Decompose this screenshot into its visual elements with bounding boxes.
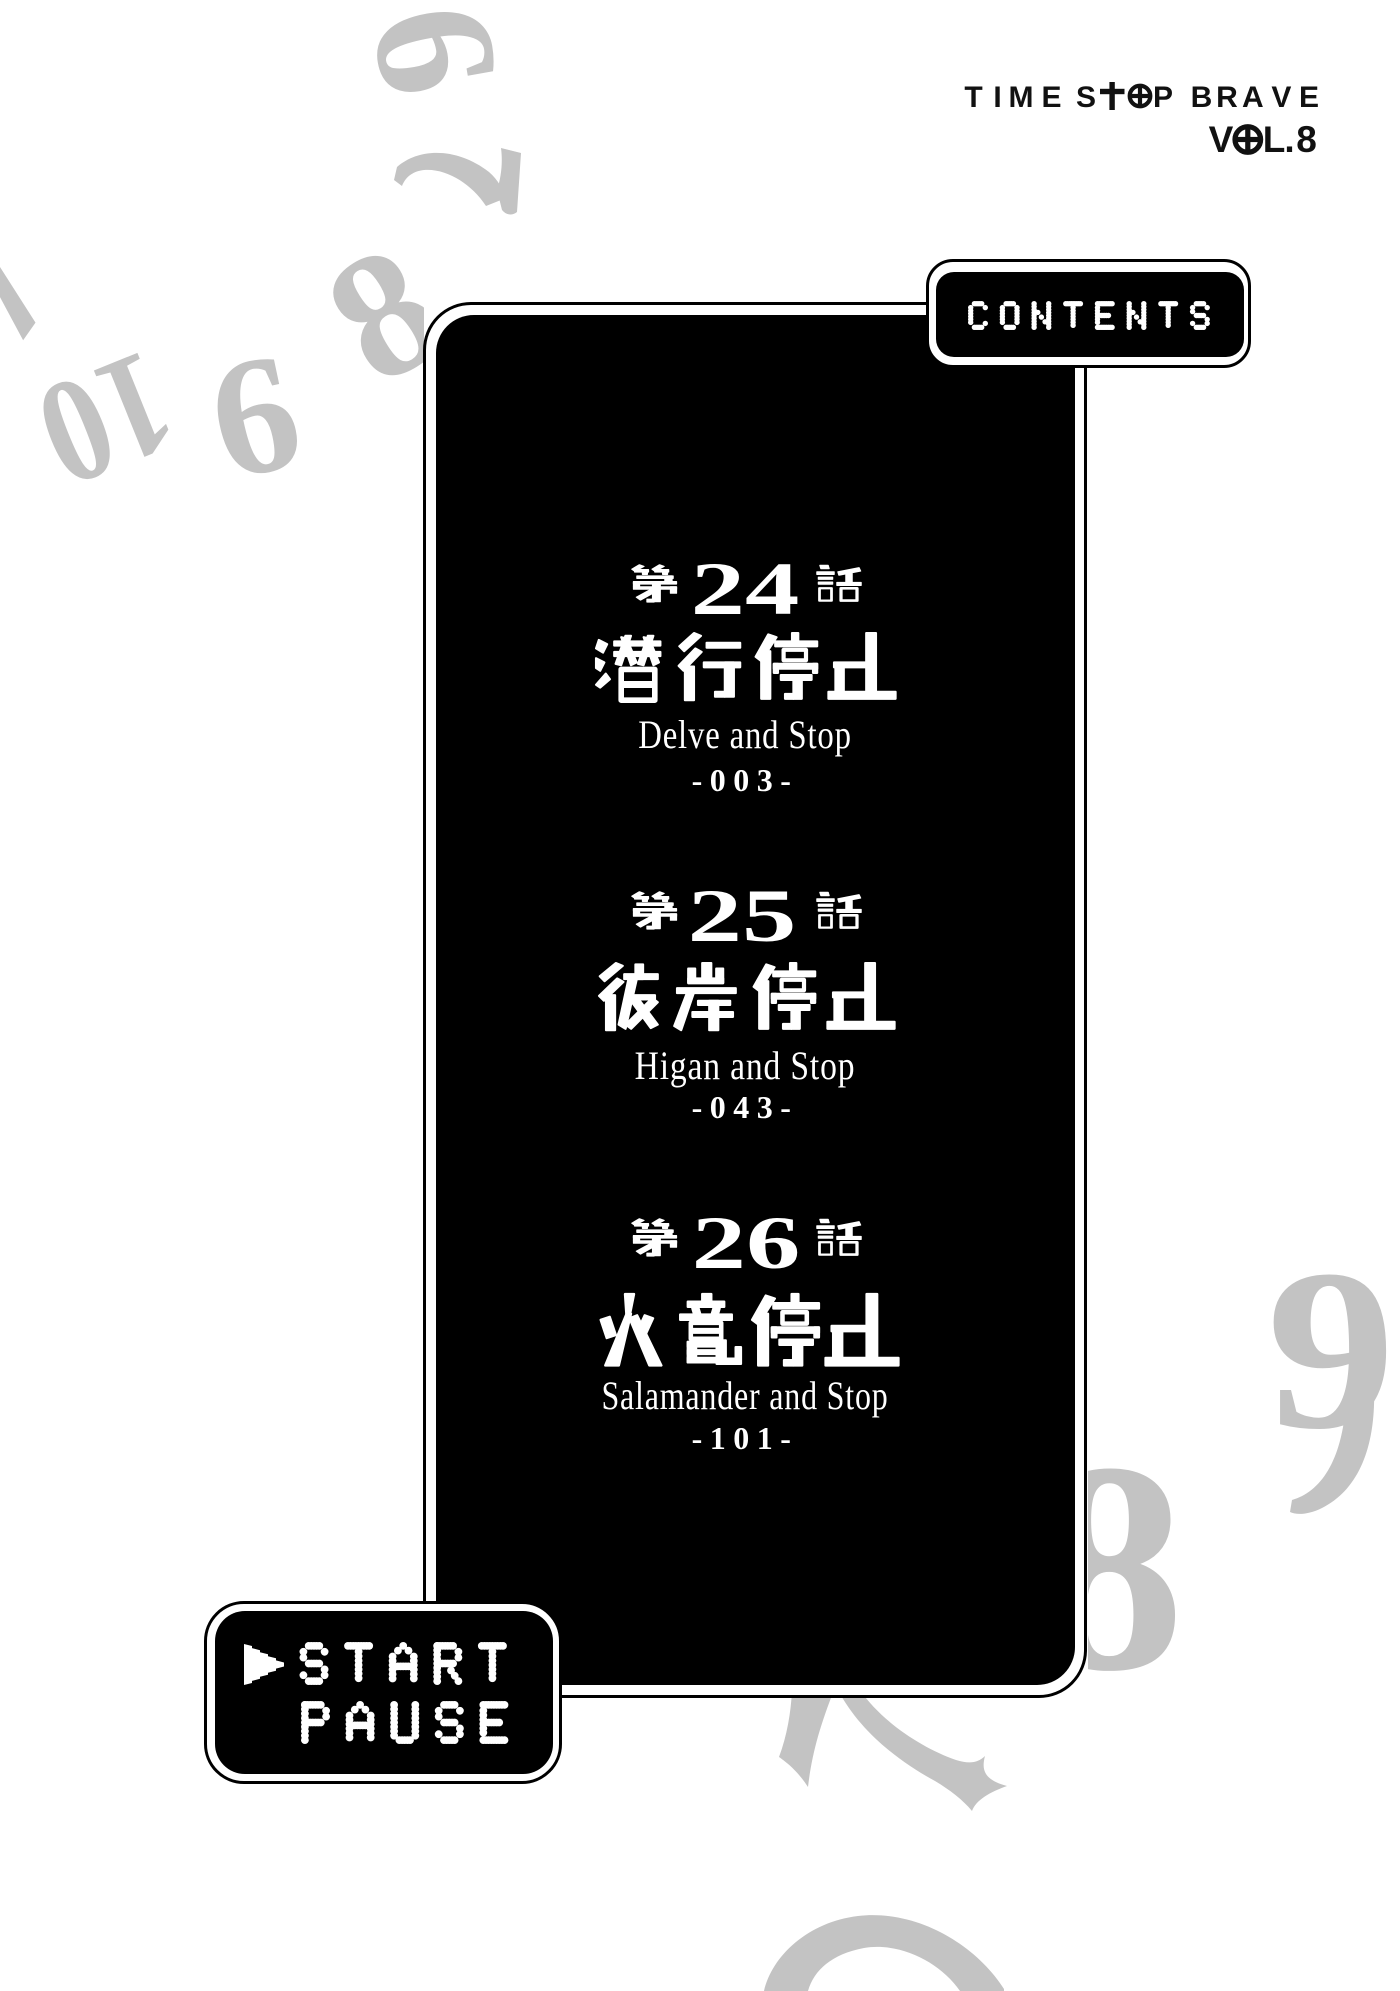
svg-text:8: 8 [1296,119,1317,160]
svg-text:V: V [1209,119,1234,160]
svg-text:R: R [1216,81,1238,114]
svg-text:E: E [1041,81,1061,114]
svg-text:V: V [1271,81,1291,114]
svg-text:A: A [1242,81,1264,114]
svg-text:S: S [1076,81,1096,114]
svg-text:M: M [1009,81,1034,114]
svg-text:.: . [1284,119,1294,160]
svg-text:B: B [1191,81,1213,114]
svg-text:T: T [964,81,982,114]
svg-text:P: P [1153,81,1173,114]
svg-text:I: I [993,81,1001,114]
svg-text:E: E [1299,81,1319,114]
svg-text:L: L [1263,119,1286,160]
